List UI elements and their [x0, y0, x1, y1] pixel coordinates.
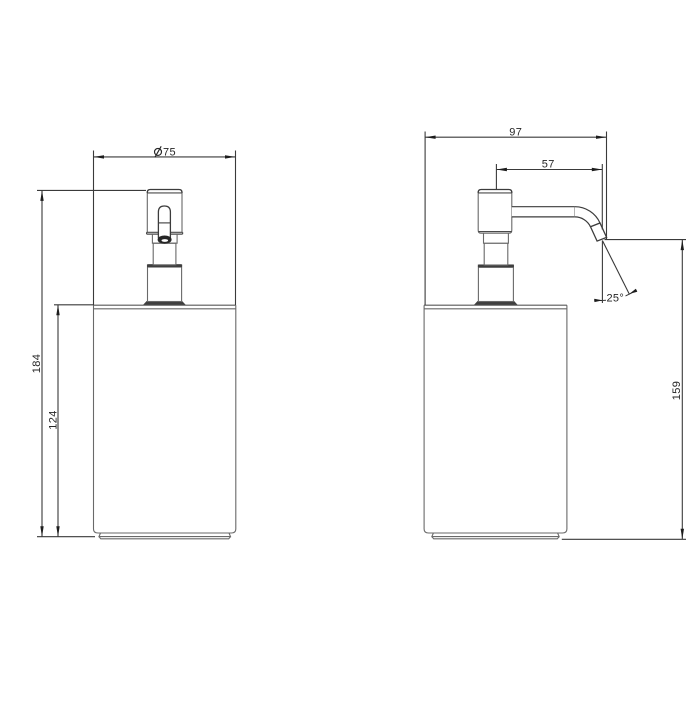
svg-text:75: 75: [163, 146, 176, 158]
svg-text:159: 159: [671, 381, 683, 401]
svg-text:124: 124: [48, 410, 60, 430]
svg-text:184: 184: [31, 354, 43, 374]
svg-text:97: 97: [509, 127, 522, 139]
svg-text:25°: 25°: [607, 293, 625, 305]
svg-text:57: 57: [542, 159, 555, 171]
